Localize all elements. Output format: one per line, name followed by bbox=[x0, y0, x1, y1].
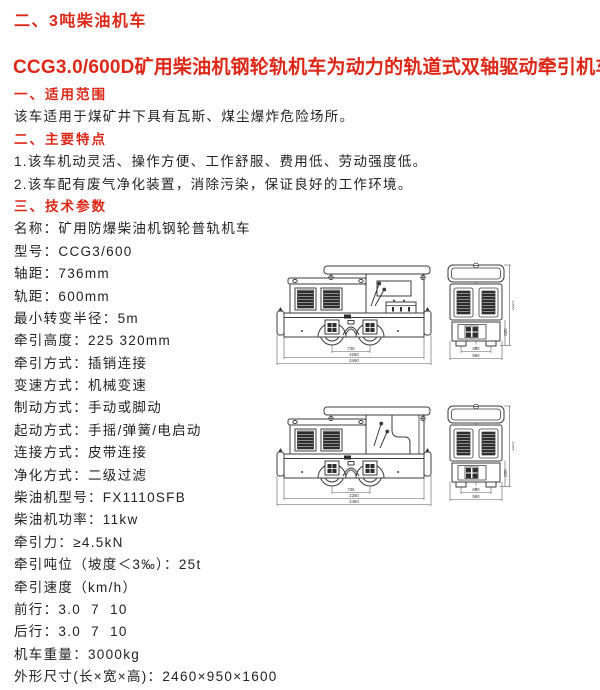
spec-line: 名称：矿用防爆柴油机钢轮普轨机车 bbox=[14, 218, 444, 240]
dim-overall-length: 2460 bbox=[349, 358, 359, 363]
dim-wheelbase: 736 bbox=[347, 346, 355, 351]
dim-gauge: 600 bbox=[472, 487, 480, 492]
spec-line: 外形尺寸(长×宽×高)：2460×950×1600 bbox=[14, 666, 444, 688]
spec-line: 柴油机功率：11kw bbox=[14, 509, 444, 531]
dim-coupler-height: 320 bbox=[503, 469, 508, 477]
spec-line: 机车重量：3000kg bbox=[14, 644, 444, 666]
section-heading: 一、适用范围 bbox=[14, 84, 444, 106]
dim-overall-width: 950 bbox=[472, 494, 480, 499]
spec-line: 变速方式：机械变速 bbox=[14, 375, 444, 397]
spec-line: 牵引力：≥4.5kN bbox=[14, 532, 444, 554]
document-page: 二、3吨柴油机车 CCG3.0/600D矿用柴油机钢轮轨机车为动力的轨道式双轴驱… bbox=[0, 0, 600, 690]
text-line: 1.该车机动灵活、操作方便、工作舒服、费用低、劳动强度低。 bbox=[14, 151, 444, 173]
spec-line: 牵引吨位（坡度＜3‰）：25t bbox=[14, 554, 444, 576]
page-title: 二、3吨柴油机车 bbox=[14, 7, 147, 31]
dim-wheelbase: 736 bbox=[347, 487, 355, 492]
spec-line: 牵引速度（km/h） bbox=[14, 577, 444, 599]
dim-frame-length: 2250 bbox=[349, 352, 359, 357]
dim-frame-length: 2250 bbox=[349, 493, 359, 498]
spec-content: 一、适用范围该车适用于煤矿井下具有瓦斯、煤尘爆炸危险场所。二、主要特点1.该车机… bbox=[14, 84, 444, 689]
dim-overall-height: 1600 bbox=[512, 300, 515, 310]
text-line: 该车适用于煤矿井下具有瓦斯、煤尘爆炸危险场所。 bbox=[14, 106, 444, 128]
spec-line: 后行：3.0 7 10 bbox=[14, 621, 444, 643]
dim-overall-height: 1600 bbox=[512, 441, 515, 451]
section-heading: 二、主要特点 bbox=[14, 129, 444, 151]
dim-gauge: 600 bbox=[472, 346, 480, 351]
page-subtitle: CCG3.0/600D矿用柴油机钢轮轨机车为动力的轨道式双轴驱动牵引机车 bbox=[13, 52, 600, 79]
dim-overall-length: 2460 bbox=[349, 499, 359, 504]
dim-coupler-height: 320 bbox=[503, 328, 508, 336]
spec-line: 前行：3.0 7 10 bbox=[14, 599, 444, 621]
spec-line: 型号：CCG3/600 bbox=[14, 241, 444, 263]
technical-drawing-side-end-view-1: 736 2250 2460 600 950 1600 320 bbox=[274, 261, 514, 369]
technical-drawing-side-end-view-2: 736 2250 2460 600 950 1600 320 bbox=[274, 402, 514, 510]
text-line: 2.该车配有废气净化装置，消除污染，保证良好的工作环境。 bbox=[14, 174, 444, 196]
dim-overall-width: 950 bbox=[472, 353, 480, 358]
section-heading: 三、技术参数 bbox=[14, 196, 444, 218]
